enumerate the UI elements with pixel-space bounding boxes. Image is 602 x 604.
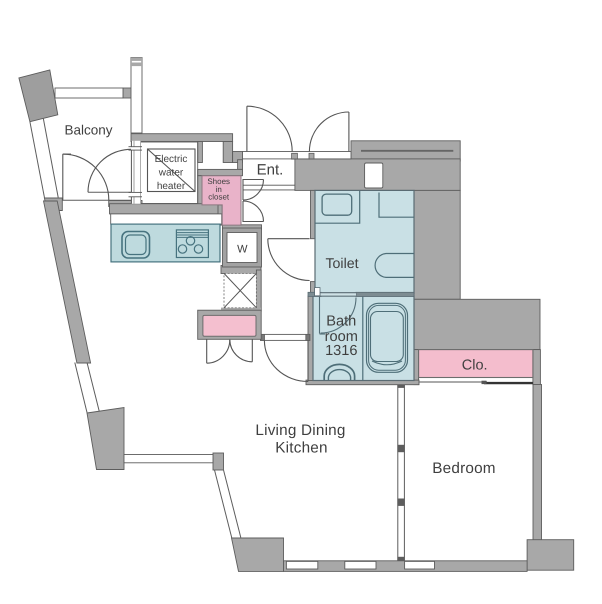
- svg-text:W: W: [237, 244, 248, 256]
- svg-text:Bath: Bath: [326, 313, 356, 329]
- svg-text:heater: heater: [157, 181, 186, 192]
- svg-text:Kitchen: Kitchen: [275, 440, 327, 457]
- svg-text:1316: 1316: [325, 343, 357, 359]
- svg-text:Ent.: Ent.: [257, 162, 284, 179]
- svg-text:water: water: [158, 168, 184, 179]
- svg-text:Balcony: Balcony: [64, 123, 112, 138]
- svg-text:Living Dining: Living Dining: [255, 422, 345, 439]
- svg-text:closet: closet: [208, 193, 230, 202]
- svg-text:Toilet: Toilet: [325, 256, 358, 272]
- svg-text:Electric: Electric: [155, 154, 188, 165]
- svg-text:Bedroom: Bedroom: [432, 460, 495, 477]
- svg-text:Clo.: Clo.: [462, 358, 488, 374]
